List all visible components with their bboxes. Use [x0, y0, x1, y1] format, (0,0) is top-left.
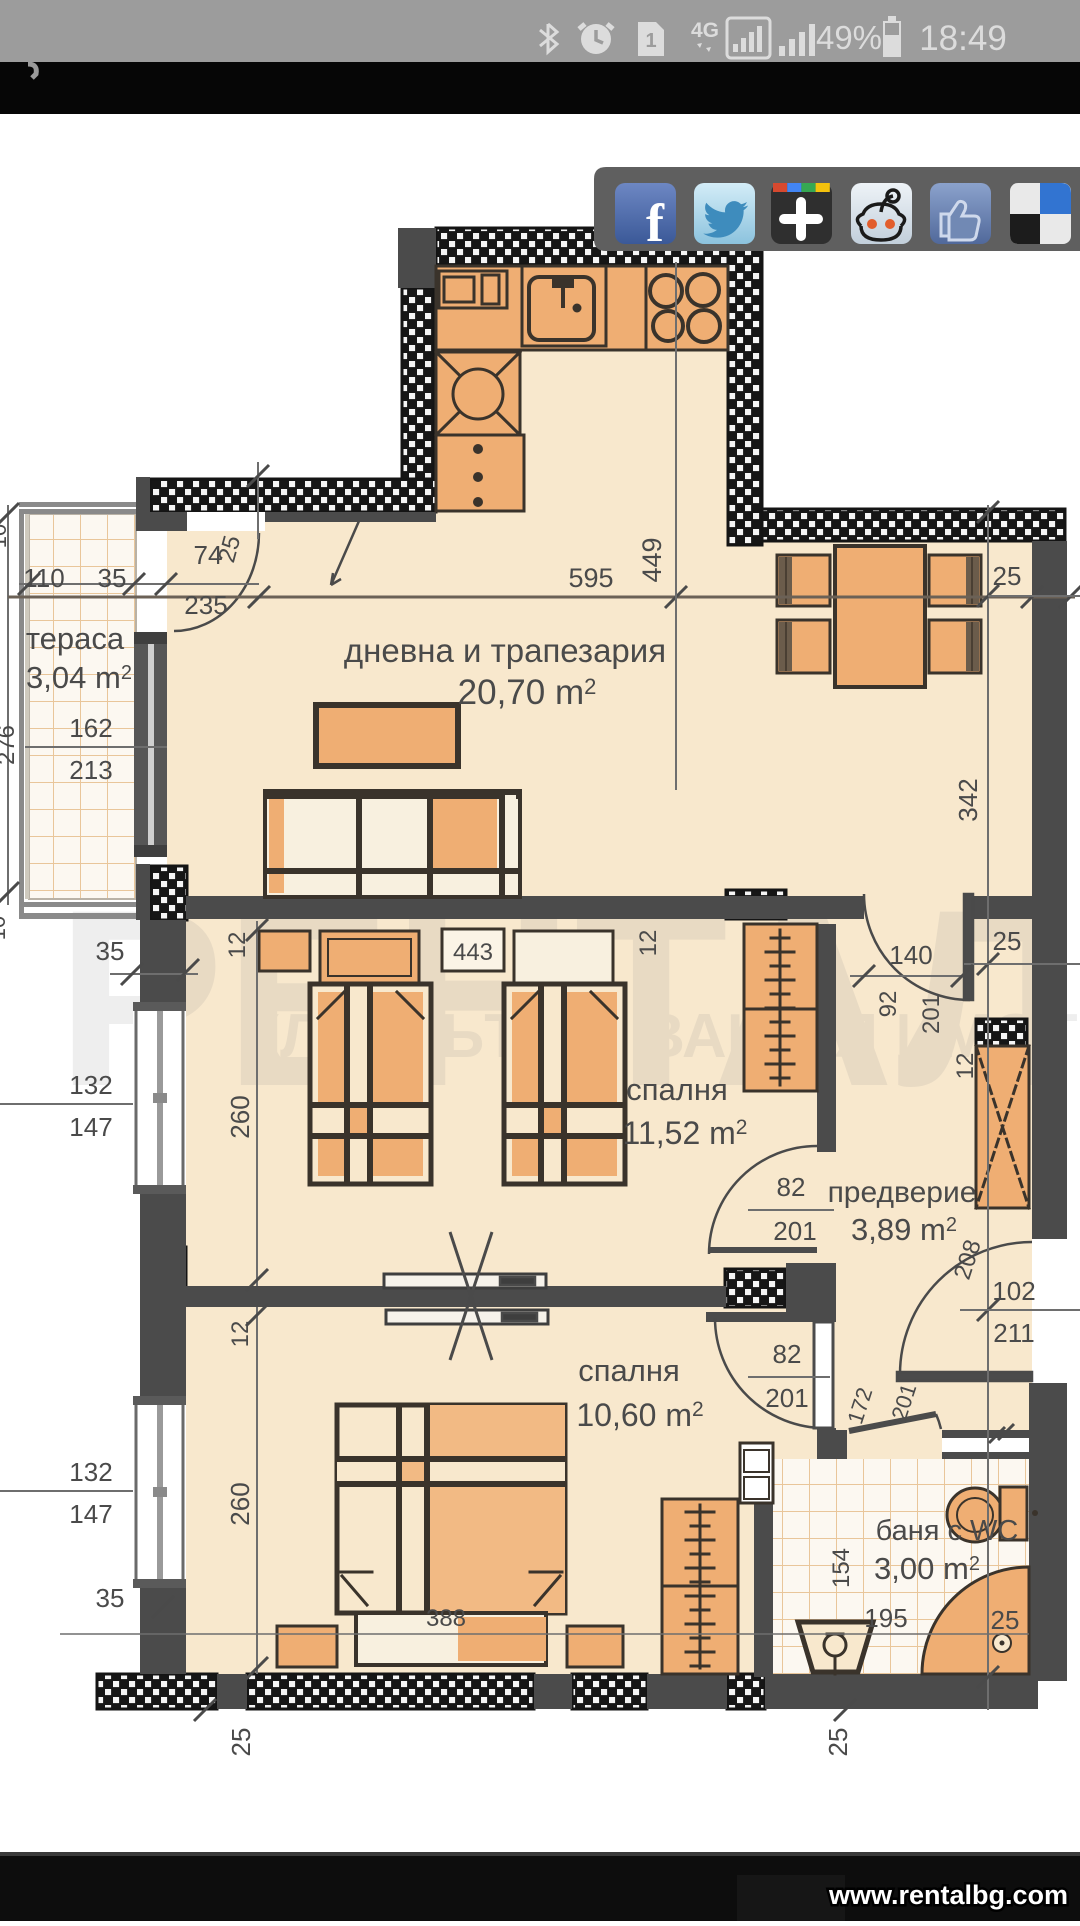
svg-text:35: 35 [96, 1583, 125, 1613]
svg-text:449: 449 [637, 537, 667, 582]
svg-text:201: 201 [773, 1216, 816, 1246]
svg-text:20,70 m2: 20,70 m2 [458, 673, 597, 712]
svg-text:10: 10 [0, 524, 11, 548]
svg-text:12: 12 [224, 932, 251, 959]
svg-text:132: 132 [69, 1070, 112, 1100]
svg-text:342: 342 [953, 778, 983, 821]
svg-text:132: 132 [69, 1457, 112, 1487]
svg-text:388: 388 [426, 1605, 466, 1632]
svg-text:тераса: тераса [26, 621, 125, 656]
svg-text:18:49: 18:49 [919, 19, 1007, 58]
svg-text:443: 443 [453, 939, 493, 966]
svg-text:спалня: спалня [626, 1072, 728, 1107]
svg-text:154: 154 [828, 1548, 855, 1588]
svg-text:147: 147 [69, 1499, 112, 1529]
svg-text:49%: 49% [816, 19, 882, 56]
svg-text:35: 35 [98, 563, 127, 593]
svg-text:10,60 m2: 10,60 m2 [576, 1397, 703, 1433]
svg-text:1: 1 [645, 30, 656, 52]
svg-text:92: 92 [875, 991, 902, 1018]
svg-text:10: 10 [0, 916, 10, 940]
svg-text:предверие: предверие [828, 1176, 977, 1209]
svg-text:12: 12 [227, 1321, 254, 1348]
svg-text:110: 110 [23, 563, 64, 593]
svg-text:35: 35 [96, 936, 125, 966]
svg-text:25: 25 [991, 1605, 1020, 1635]
svg-text:201: 201 [765, 1383, 808, 1413]
svg-text:11,52 m2: 11,52 m2 [623, 1115, 748, 1151]
svg-text:147: 147 [69, 1112, 112, 1142]
svg-text:211: 211 [993, 1318, 1034, 1348]
svg-text:25: 25 [226, 1728, 256, 1757]
svg-text:25: 25 [993, 926, 1022, 956]
svg-text:82: 82 [773, 1339, 802, 1369]
svg-text:25: 25 [993, 561, 1022, 591]
svg-text:f: f [646, 193, 665, 253]
svg-text:595: 595 [568, 563, 613, 593]
svg-text:260: 260 [225, 1482, 255, 1525]
svg-text:276: 276 [0, 725, 20, 765]
svg-text:12: 12 [952, 1053, 979, 1080]
svg-text:102: 102 [992, 1276, 1035, 1306]
svg-text:82: 82 [777, 1172, 806, 1202]
svg-text:3,89 m2: 3,89 m2 [851, 1212, 957, 1247]
svg-text:201: 201 [918, 994, 945, 1034]
svg-text:3,00 m2: 3,00 m2 [874, 1551, 980, 1586]
svg-text:дневна и трапезария: дневна и трапезария [344, 632, 666, 669]
svg-text:162: 162 [69, 713, 112, 743]
svg-text:140: 140 [889, 940, 932, 970]
svg-text:12: 12 [635, 930, 662, 957]
svg-text:260: 260 [225, 1095, 255, 1138]
svg-text:спалня: спалня [578, 1353, 680, 1388]
svg-text:235: 235 [184, 590, 227, 620]
svg-text:3,04 m2: 3,04 m2 [26, 660, 132, 695]
svg-text:www.rentalbg.com: www.rentalbg.com [828, 1880, 1068, 1910]
svg-text:25: 25 [823, 1728, 853, 1757]
svg-text:баня с WC: баня с WC [876, 1515, 1019, 1547]
svg-text:195: 195 [864, 1603, 907, 1633]
svg-text:213: 213 [69, 755, 112, 785]
svg-text:4G: 4G [691, 19, 719, 42]
